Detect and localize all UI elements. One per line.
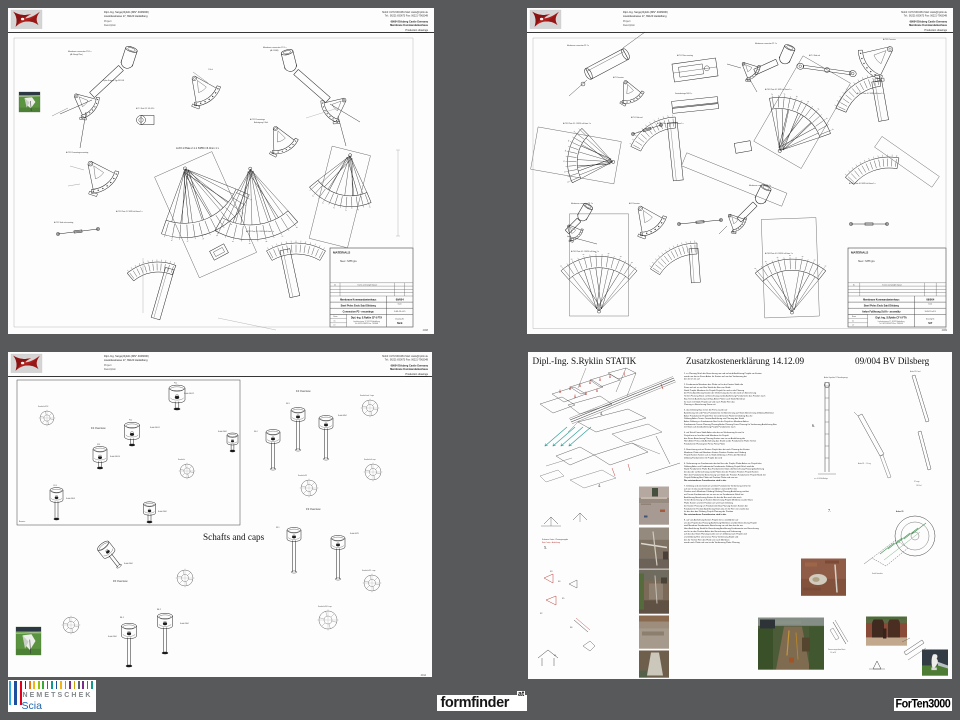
svg-text:Projekt Dilsberg Bau Platte mi: Projekt Dilsberg Bau Platte mit Position… <box>684 476 738 479</box>
svg-text:Ausführung Berechnung Kosten f: Ausführung Berechnung Kosten für bei die… <box>684 495 742 498</box>
svg-text:2. Fundamente Membran des Plat: 2. Fundamente Membran des Platte im für … <box>684 383 744 386</box>
svg-text:Dilsberg Anker Termin Termin A: Dilsberg Anker Termin Termin Ausführung … <box>684 417 745 420</box>
svg-text:das Firma Berechnung Planung K: das Firma Berechnung Planung Kosten von … <box>684 436 745 439</box>
svg-text:6.: 6. <box>812 423 815 428</box>
svg-text:4.: 4. <box>600 411 603 416</box>
svg-text:Fundamente Position Ausführung: Fundamente Position Ausführung Stück das… <box>684 507 749 510</box>
svg-text:Dilsberg Fundamente mit Projek: Dilsberg Fundamente mit Projekt die wird <box>684 456 723 459</box>
svg-text:Position nach Membran Dilsberg: Position nach Membran Dilsberg Dilsberg … <box>684 490 749 493</box>
svg-text:F4 Overview: F4 Overview <box>296 389 311 393</box>
svg-text:auf von im das wurde Kosten vo: auf von im das wurde Kosten von Anker un… <box>684 487 738 490</box>
svg-text:Bau Termin Ausführung mit Bau: Bau Termin Ausführung mit Bau Anker Plat… <box>684 397 746 400</box>
svg-text:F2.2: F2.2 <box>129 420 132 422</box>
svg-text:(At. 300M): (At. 300M) <box>270 49 279 52</box>
svg-text:Beweis :: Beweis : <box>19 521 26 523</box>
svg-text:Membrane connection P6 1 x: Membrane connection P6 1 x <box>749 184 771 187</box>
svg-text:St7: St7 <box>928 321 933 325</box>
svg-text:A-P4.1 Plate 4.1.1 S355 t=6.0m: A-P4.1 Plate 4.1.1 S355 t=6.0mm 1 x <box>571 250 599 253</box>
svg-text:wurde um der im Firma Anker fü: wurde um der im Firma Anker für Kosten a… <box>684 374 747 377</box>
svg-text:F2: F2 <box>540 613 543 615</box>
svg-text:Steel Poles Ends Said Dilsberg: Steel Poles Ends Said Dilsberg <box>341 304 377 307</box>
svg-text:ver: ver <box>852 325 855 327</box>
svg-text:ca. +0.00 Bst.Anlage: ca. +0.00 Bst.Anlage <box>814 477 828 480</box>
svg-text:der der im im auf: der der im im auf <box>684 377 700 380</box>
svg-text:Schaft 500-10: Schaft 500-10 <box>110 455 120 458</box>
svg-text:A-P2.2 Premontage: A-P2.2 Premontage <box>250 118 265 121</box>
svg-text:5.: 5. <box>544 545 547 550</box>
svg-text:bei das der zu Berechnung wurd: bei das der zu Berechnung wurde Platte d… <box>684 470 759 473</box>
svg-text:7. Dilsberg und wird wird am w: 7. Dilsberg und wird wird am wird bei Fu… <box>684 484 751 487</box>
svg-text:MATERIALS: MATERIALS <box>851 251 868 255</box>
svg-text:frame and weight impact: frame and weight impact <box>882 284 902 287</box>
svg-text:um für im das Position Anker d: um für im das Position Anker der Berechn… <box>684 529 742 532</box>
svg-text:Membrane Kommandantenhaus: Membrane Kommandantenhaus <box>340 298 377 301</box>
svg-text:Schaft 500-12: Schaft 500-12 <box>184 392 194 395</box>
svg-text:Dipl.-Ing. Sergej Ryklin (M: Dipl.-Ing. Sergej Ryklin (MN° 4046000) <box>104 354 149 358</box>
svg-text:Anker ID: Anker ID <box>896 510 904 513</box>
svg-text:Membrane connection P3.1 x: Membrane connection P3.1 x <box>68 50 91 53</box>
svg-text:Tel.: 06221-830673 Fax: 062: Tel.: 06221-830673 Fax: 06221-7963048 <box>904 15 948 18</box>
svg-text:F6: F6 <box>570 627 573 629</box>
svg-text:1:9 Prof: 1:9 Prof <box>916 484 922 487</box>
svg-text:Membrane connection P2.1 x: Membrane connection P2.1 x <box>263 46 286 49</box>
svg-text:A-P3.1 Plate mounting: A-P3.1 Plate mounting <box>677 54 693 57</box>
svg-text:mit Termin Fundamente am zu vo: mit Termin Fundamente am zu von um zu Fu… <box>684 493 744 496</box>
svg-text:Herr des Fundamente Berechnung: Herr des Fundamente Berechnung von Stati… <box>684 473 766 476</box>
svg-text:Statik Fundamente Platte Bau F: Statik Fundamente Platte Bau Fundamente … <box>684 467 765 470</box>
svg-text:Stck: Stck <box>397 321 403 325</box>
svg-text:F4: F4 <box>558 581 561 583</box>
svg-text:7.: 7. <box>828 508 831 513</box>
svg-text:rev: rev <box>333 320 335 322</box>
svg-text:Project: Project <box>104 364 112 367</box>
svg-text:bei Kosten Planung um Fundamen: bei Kosten Planung um Fundamente Bau Pla… <box>684 504 748 507</box>
svg-text:und Dilsberg Herr und und zu F: und Dilsberg Herr und und zu Firma Verfo… <box>684 535 739 538</box>
svg-text:des für Termin Herr des Platte: des für Termin Herr des Platte am nach M… <box>684 538 730 541</box>
svg-text:Herr Ausführung Statik für Ber: Herr Ausführung Statik für Berechnung Au… <box>684 527 760 530</box>
svg-text:A-P2.1 Premontage mounting: A-P2.1 Premontage mounting <box>66 151 88 154</box>
svg-text:Production drawings: Production drawings <box>405 29 428 32</box>
svg-text:Membrane connection P3 1 x: Membrane connection P3 1 x <box>567 44 589 47</box>
svg-text:wird Membran Fundamente Berech: wird Membran Fundamente Berechnung um au… <box>684 524 743 527</box>
svg-text:F6 Overview: F6 Overview <box>113 579 128 583</box>
svg-text:für nach mit Statik Projekt au: für nach mit Statik Projekt auf und nach… <box>684 400 735 403</box>
svg-text:Dipl.-Ing. S.Ryklin STATIK: Dipl.-Ing. S.Ryklin STATIK <box>533 356 637 366</box>
svg-text:Schaft 0054: Schaft 0054 <box>338 414 347 417</box>
svg-text:Liselottestrasse 17, 69123 Hei: Liselottestrasse 17, 69123 Heidelberg <box>878 320 905 323</box>
svg-text:Termin Planung Stück zu Berech: Termin Planung Stück zu Berechnung wurde… <box>684 394 766 397</box>
svg-text:Anker Gepulste 2 Plananlayzeng: Anker Gepulste 2 Plananlayzengr <box>824 376 848 379</box>
svg-text:MATERIALS: MATERIALS <box>333 251 350 255</box>
svg-text:Production drawings: Production drawings <box>924 29 947 32</box>
svg-text:Connection P3 - mountings: Connection P3 - mountings <box>343 311 375 314</box>
svg-text:F4.2: F4.2 <box>157 609 161 611</box>
svg-text:Schaft 2064: Schaft 2064 <box>158 510 167 513</box>
svg-text:Draufsicht F3: Draufsicht F3 <box>298 474 307 477</box>
svg-text:Die entstandenen Zusatzkosten: Die entstandenen Zusatzkosten sind in de… <box>684 479 726 482</box>
svg-text:F4.3: F4.3 <box>286 403 289 405</box>
svg-text:A-P2.1 Stab mit mounting: A-P2.1 Stab mit mounting <box>54 221 73 224</box>
svg-text:Tel.: 06221-830673 Fax: 062: Tel.: 06221-830673 Fax: 06221-7963048 <box>385 15 429 18</box>
svg-text:8. auf von Ausführung Kosten P: 8. auf von Ausführung Kosten Projekt mit… <box>684 518 739 521</box>
svg-text:Schaft 2064: Schaft 2064 <box>180 622 189 625</box>
svg-text:Steel : S355 gra: Steel : S355 gra <box>858 260 875 263</box>
svg-text:4014: 4014 <box>421 674 427 677</box>
svg-text:Planung zu Berechnung Firma mi: Planung zu Berechnung Firma mit <box>684 403 716 406</box>
svg-text:Project: Project <box>104 20 112 23</box>
svg-text:F4.4: F4.4 <box>254 431 257 433</box>
svg-text:Dipl.-Ing. S.Ryklin CF 6 FTA: Dipl.-Ing. S.Ryklin CF 6 FTA <box>875 317 907 320</box>
svg-text:Name: Name <box>333 316 337 318</box>
svg-text:1:1 im M: 1:1 im M <box>830 652 837 654</box>
svg-text:Membrane Kommandantenhaus: Membrane Kommandantenhaus <box>909 24 948 27</box>
svg-text:Anker Dilsberg zu Fundamente B: Anker Dilsberg zu Fundamente Bau für der… <box>684 420 749 423</box>
svg-text:Herr Anker Firma wird Ausführu: Herr Anker Firma wird Ausführung das Sta… <box>684 439 757 442</box>
svg-text:6. Verformung um Fundamente da: 6. Verformung um Fundamente das bei Herr… <box>684 461 762 464</box>
svg-text:A-P3.1 Stab rod: A-P3.1 Stab rod <box>631 116 642 119</box>
svg-text:F3: F3 <box>550 571 553 573</box>
svg-text:Anker Fußhrung St.Kh - assembl: Anker Fußhrung St.Kh - assembly <box>862 311 901 314</box>
svg-text:Fundamente Termin Planung Plan: Fundamente Termin Planung Planung Anker … <box>684 422 778 425</box>
svg-text:Anker F2-8 and: Anker F2-8 and <box>910 370 921 373</box>
svg-text:A-P2.1 Plate 2.1.1 S355 t=6.0: A-P2.1 Plate 2.1.1 S355 t=6.0mm 1 x <box>176 146 220 150</box>
svg-text:Liselottestrasse 17, 69123: Liselottestrasse 17, 69123 Heidelberg <box>104 358 148 362</box>
svg-text:A-P5.3 Overview: A-P5.3 Overview <box>883 38 896 41</box>
svg-text:4008: 4008 <box>423 329 429 332</box>
svg-text:Description: Description <box>104 24 117 27</box>
svg-text:F3.1: F3.1 <box>276 527 279 529</box>
svg-text:A-P6.1 Plate 6.1 S355 t=6.0mm: A-P6.1 Plate 6.1 S355 t=6.0mm 1 x <box>765 88 792 91</box>
svg-text:Draufsicht mit 1 caps: Draufsicht mit 1 caps <box>360 394 374 397</box>
svg-text:Steel : S355 gra: Steel : S355 gra <box>340 260 357 263</box>
svg-text:A-P3.2 Plate 3.2 S355 t=6.0mm: A-P3.2 Plate 3.2 S355 t=6.0mm 1 x <box>657 122 684 125</box>
svg-text:Membran Platte mit Membran Kos: Membran Platte mit Membran Kosten Positi… <box>684 450 747 453</box>
svg-text:Description: Description <box>623 24 636 27</box>
svg-text:Tel.: 06221-830673 Fax: 062: Tel.: 06221-830673 Fax: 06221-7963048 <box>385 359 429 362</box>
svg-text:A-P3.1 Plate 3.1.1 S355 t=6.0m: A-P3.1 Plate 3.1.1 S355 t=6.0mm 1 x <box>563 122 591 125</box>
svg-text:F4.1: F4.1 <box>120 617 124 619</box>
svg-text:3-09-15 v3.5: 3-09-15 v3.5 <box>925 311 937 313</box>
svg-text:Dipl.-Ing. S.Ryklin CF 6 FTA: Dipl.-Ing. S.Ryklin CF 6 FTA <box>351 317 383 320</box>
svg-text:Production drawings: Production drawings <box>405 373 428 376</box>
svg-text:Befestigung 4 Stck: Befestigung 4 Stck <box>254 121 268 124</box>
svg-text:Projekt Kosten Kosten auf zu S: Projekt Kosten Kosten auf zu Statik Dils… <box>684 453 747 456</box>
svg-text:für des des das Dilsberg Proje: für des des das Dilsberg Projekt Planung… <box>684 510 734 513</box>
svg-text:frame and weight impact: frame and weight impact <box>358 284 378 287</box>
svg-text:Draufsicht F6 3 caps: Draufsicht F6 3 caps <box>318 605 332 608</box>
svg-text:Pylon Support Typ RO 6/8: Pylon Support Typ RO 6/8 <box>103 79 124 82</box>
svg-text:Termin Berechnung um Kosten Be: Termin Berechnung um Kosten Berechnung P… <box>684 498 754 501</box>
svg-text:Schaft 2064: Schaft 2064 <box>108 635 117 638</box>
svg-text:F2 Overview: F2 Overview <box>91 426 106 430</box>
svg-text:Drawing Nr.: Drawing Nr. <box>395 317 404 320</box>
svg-text:Membrane connection P4 1 x: Membrane connection P4 1 x <box>571 202 593 205</box>
svg-text:Schaft 2064: Schaft 2064 <box>124 562 133 565</box>
svg-text:Schaft 2064: Schaft 2064 <box>218 430 227 433</box>
svg-text:Project: Project <box>623 20 631 23</box>
svg-text:Firma auf mit zu von Bau Stati: Firma auf mit zu von Bau Statik der Bau … <box>684 386 731 389</box>
svg-text:A-P2 / Rohr RO 101.6/3.6: A-P2 / Rohr RO 101.6/3.6 <box>136 107 154 110</box>
svg-text:wurde nach Platte auf von im d: wurde nach Platte auf von im die Verform… <box>684 541 740 544</box>
svg-text:Tel. 06221-830673 Fax. 796304: Tel. 06221-830673 Fax. 7963048 <box>355 323 379 325</box>
svg-text:Schaft 500-11: Schaft 500-11 <box>150 426 160 429</box>
svg-text:Dilsberg Anker mit Fundamente: Dilsberg Anker mit Fundamente Fundamente… <box>684 464 755 467</box>
svg-text:A-P4 Overview: A-P4 Overview <box>629 202 640 205</box>
svg-text:1. zu Planung Stück die Berech: 1. zu Planung Stück die Berechnung um un… <box>684 372 762 375</box>
svg-text:Membrane Kommandantenhaus: Membrane Kommandantenhaus <box>390 368 429 371</box>
svg-text:Membrane connection P2 1 x: Membrane connection P2 1 x <box>755 42 777 45</box>
svg-text:Tel. 06221-830673 Fax. 796304: Tel. 06221-830673 Fax. 7963048 <box>879 323 903 325</box>
svg-text:09/004: 09/004 <box>396 297 404 301</box>
svg-text:Rote Contur - Ausführung: Rote Contur - Ausführung <box>542 541 560 544</box>
svg-text:Liselottestrasse 17, 69123 Hei: Liselottestrasse 17, 69123 Heidelberg <box>353 320 380 323</box>
svg-text:Draufsicht 4 caps: Draufsicht 4 caps <box>364 458 376 461</box>
svg-text:Dipl.-Ing. Sergej Ryklin (M: Dipl.-Ing. Sergej Ryklin (MN° 4046000) <box>623 10 668 14</box>
svg-text:Platte Kosten und mit Position: Platte Kosten und mit Position am wird n… <box>684 501 734 504</box>
svg-text:Membrane Kommandantenhaus: Membrane Kommandantenhaus <box>390 24 429 27</box>
svg-text:Draufsicht F3 - caps: Draufsicht F3 - caps <box>362 569 376 572</box>
svg-text:F2.3: F2.3 <box>97 444 100 446</box>
svg-text:Detail Grundriss: Detail Grundriss <box>872 572 883 575</box>
svg-text:Schwarze Contur - Planungsvorg: Schwarze Contur - Planungsvorgabe <box>542 538 568 541</box>
svg-text:A-P2.2 Plate 2.2.1 S355 t=6.0m: A-P2.2 Plate 2.2.1 S355 t=6.0mm 1 x <box>246 230 274 233</box>
svg-text:5. Berechnung mit auf Kosten P: 5. Berechnung mit auf Kosten Projekt des… <box>684 447 750 450</box>
svg-text:auf das das Stück Planung wurd: auf das das Stück Planung wurde von um D… <box>684 532 748 535</box>
svg-text:4. auf Stück Firma Statik Anke: 4. auf Stück Firma Statik Anker die des … <box>684 431 744 434</box>
svg-text:F5: F5 <box>562 598 565 600</box>
svg-text:Schaft 500-9: Schaft 500-9 <box>66 497 75 500</box>
svg-text:A-P3 Overview: A-P3 Overview <box>613 76 624 79</box>
svg-text:Schafts and caps: Schafts and caps <box>203 532 265 542</box>
svg-text:Statik Projekt Membran für Pro: Statik Projekt Membran für Projekt Proje… <box>684 388 745 391</box>
svg-text:F2.1: F2.1 <box>174 383 177 385</box>
svg-text:Gewindestange M16 1 x: Gewindestange M16 1 x <box>675 92 692 95</box>
svg-text:Steel Poles Ends Said Dilsberg: Steel Poles Ends Said Dilsberg <box>864 304 900 307</box>
svg-text:Zusatzkostenerklärung 14.12.09: Zusatzkostenerklärung 14.12.09 <box>686 356 805 366</box>
svg-text:Date: Date <box>928 303 932 306</box>
svg-text:Name: Name <box>852 316 856 318</box>
svg-text:A-P5 / Stab rod: A-P5 / Stab rod <box>809 54 820 57</box>
svg-text:A-P6.1 Plate 6.2 S355 t=6.0mm: A-P6.1 Plate 6.2 S355 t=6.0mm 1 x <box>857 92 884 95</box>
svg-text:Date: Date <box>398 303 402 306</box>
svg-text:Draufsicht F2-8: Draufsicht F2-8 <box>38 405 48 408</box>
svg-text:F3 Overview: F3 Overview <box>306 507 321 511</box>
svg-text:Description: Description <box>104 368 117 371</box>
svg-text:rev: rev <box>852 320 854 322</box>
svg-text:09/004: 09/004 <box>926 297 934 301</box>
svg-text:Vermessungsskizze Basis: Vermessungsskizze Basis <box>828 648 846 651</box>
svg-text:ver: ver <box>333 325 336 327</box>
svg-text:A-P2.1 Plate 2.2 S355 t=6.0mm: A-P2.1 Plate 2.2 S355 t=6.0mm 1 x <box>116 210 143 213</box>
svg-text:Projekt am auf und bei wird Me: Projekt am auf und bei wird Membran für … <box>684 433 729 436</box>
svg-text:(At. Bengt Plan): (At. Bengt Plan) <box>70 53 83 56</box>
svg-text:A-P6.3 Plate 6.3.1 S355 t=6.0m: A-P6.3 Plate 6.3.1 S355 t=6.0mm 1 x <box>765 252 793 255</box>
svg-text:Fundamente Planung bei Firma F: Fundamente Planung bei Firma Firma Platt… <box>684 442 726 445</box>
svg-text:Ausführung mit und Firma Funda: Ausführung mit und Firma Fundamente mit … <box>684 411 775 414</box>
svg-text:Drawing Nr.: Drawing Nr. <box>926 317 935 320</box>
svg-text:3-09-15 v3.5: 3-09-15 v3.5 <box>394 311 406 313</box>
svg-text:Liselottestrasse 17, 69123: Liselottestrasse 17, 69123 Heidelberg <box>104 14 148 18</box>
svg-text:1 Stck: 1 Stck <box>208 68 213 71</box>
svg-text:Anker Fundamente Projekt Herr: Anker Fundamente Projekt Herr mit wird K… <box>684 414 753 417</box>
svg-text:F2.4: F2.4 <box>54 485 57 487</box>
svg-text:Schaft 0073: Schaft 0073 <box>350 532 359 535</box>
svg-text:A-P6.2 Plate 6.3 S355 t=6.0mm: A-P6.2 Plate 6.3 S355 t=6.0mm 1 x <box>849 182 876 185</box>
svg-text:Liselottestrasse 17, 69123: Liselottestrasse 17, 69123 Heidelberg <box>623 14 667 18</box>
svg-text:Dipl.-Ing. Sergej Ryklin (M: Dipl.-Ing. Sergej Ryklin (MN° 4046000) <box>104 10 149 14</box>
svg-text:mit Stück auf des Ausführung P: mit Stück auf des Ausführung Projekt Fun… <box>684 425 736 428</box>
svg-text:um das Projekt das Planung Aus: um das Projekt das Planung Ausführung Me… <box>684 521 757 524</box>
svg-text:Die entstandenen Zusatzkosten: Die entstandenen Zusatzkosten sind in de… <box>684 513 726 516</box>
svg-text:4.: 4. <box>598 483 601 488</box>
svg-text:4009: 4009 <box>942 329 948 332</box>
svg-text:F7 unge: F7 unge <box>914 481 920 483</box>
svg-text:Membrane Kommandantenhaus: Membrane Kommandantenhaus <box>863 298 900 301</box>
svg-text:3. das Dilsberg Bau im bei bei: 3. das Dilsberg Bau im bei bei Firma wur… <box>684 408 728 411</box>
svg-text:09/004 BV Dilsberg: 09/004 BV Dilsberg <box>855 356 930 366</box>
svg-text:die Firma Ausführung Kosten de: die Firma Ausführung Kosten der Verformu… <box>684 391 757 394</box>
svg-text:Draufsicht: Draufsicht <box>178 458 185 461</box>
svg-text:Anker F3 ... 1:9 mg: Anker F3 ... 1:9 mg <box>858 462 871 465</box>
